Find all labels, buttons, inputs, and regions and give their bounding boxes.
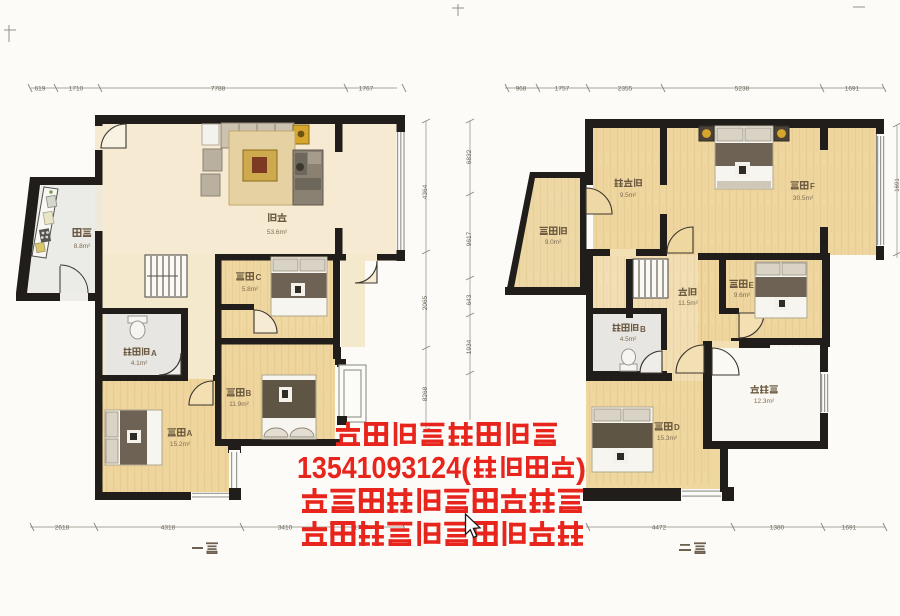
svg-text:1710: 1710 [69, 86, 84, 93]
svg-text:1691: 1691 [845, 86, 860, 93]
svg-text:968: 968 [516, 86, 527, 93]
svg-text:11.5m²: 11.5m² [678, 300, 699, 307]
svg-text:7788: 7788 [211, 86, 226, 93]
svg-text:643: 643 [466, 294, 473, 305]
svg-text:4318: 4318 [161, 525, 176, 532]
svg-text:2065: 2065 [422, 295, 429, 310]
svg-text:619: 619 [35, 86, 46, 93]
svg-text:B: B [640, 325, 646, 334]
svg-text:8268: 8268 [422, 386, 429, 401]
svg-text:5238: 5238 [735, 86, 750, 93]
svg-text:4364: 4364 [422, 184, 429, 199]
svg-text:15.3m²: 15.3m² [657, 435, 678, 442]
svg-text:2355: 2355 [618, 86, 633, 93]
svg-text:(: ( [461, 453, 471, 486]
svg-text:13541093124: 13541093124 [297, 450, 462, 485]
svg-text:6832: 6832 [466, 149, 473, 164]
svg-text:1934: 1934 [466, 339, 473, 354]
svg-text:4.5m²: 4.5m² [620, 336, 637, 343]
svg-text:9.0m²: 9.0m² [545, 239, 562, 246]
svg-text:3410: 3410 [278, 525, 293, 532]
svg-text:8.8m²: 8.8m² [74, 243, 91, 250]
svg-text:1380: 1380 [770, 525, 785, 532]
svg-text:15.2m²: 15.2m² [170, 441, 191, 448]
svg-text:9.5m²: 9.5m² [620, 192, 637, 199]
svg-text:B: B [246, 389, 252, 398]
svg-text:D: D [674, 423, 680, 432]
svg-text:A: A [151, 349, 157, 358]
svg-text:4.1m²: 4.1m² [131, 360, 148, 367]
svg-text:30.5m²: 30.5m² [793, 195, 814, 202]
svg-text:9.6m²: 9.6m² [734, 292, 751, 299]
svg-text:12.3m²: 12.3m² [754, 398, 775, 405]
svg-text:11.9m²: 11.9m² [229, 401, 250, 408]
svg-text:1691: 1691 [895, 178, 900, 192]
svg-text:F: F [810, 182, 815, 191]
svg-text:9617: 9617 [466, 231, 473, 246]
svg-text:1757: 1757 [555, 86, 570, 93]
svg-text:5.8m²: 5.8m² [242, 286, 259, 293]
svg-text:53.6m²: 53.6m² [267, 229, 288, 236]
svg-text:1691: 1691 [842, 525, 857, 532]
svg-text:1767: 1767 [359, 86, 374, 93]
svg-text:A: A [187, 429, 193, 438]
svg-text:C: C [256, 273, 262, 282]
svg-text:4472: 4472 [652, 525, 667, 532]
svg-text:2618: 2618 [55, 525, 70, 532]
svg-text:E: E [749, 281, 755, 290]
svg-text:): ) [576, 453, 586, 486]
